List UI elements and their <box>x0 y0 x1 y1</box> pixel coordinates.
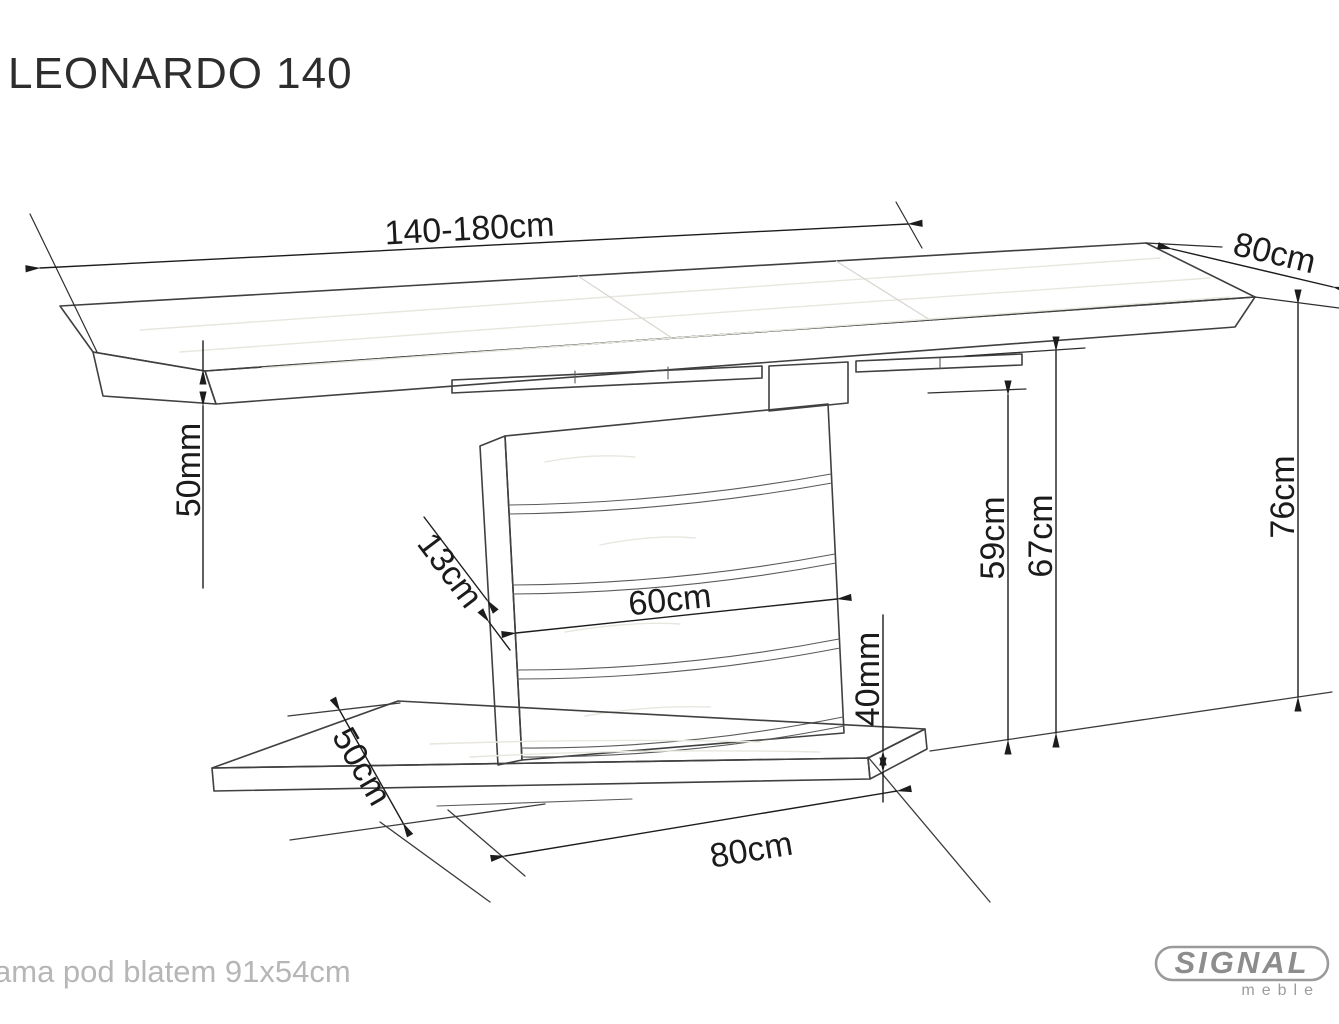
dim-table-depth-ext-back <box>1146 243 1222 247</box>
dim-label-base-thickness: 40mm <box>849 632 887 726</box>
dim-base-length-line <box>505 791 897 856</box>
dim-label-table-height: 76cm <box>1264 455 1302 538</box>
dim-table-depth-ext-front <box>1255 297 1339 308</box>
dim-base-depth: 50cm <box>324 711 403 823</box>
dim-label-base-length: 80cm <box>707 825 795 876</box>
dim-label-underside-height: 67cm <box>1022 494 1060 577</box>
tabletop-wood-texture <box>140 258 1230 368</box>
floor-diagonal-left-b <box>448 810 525 876</box>
leonardo-140-dimension-diagram: LEONARDO 140 <box>0 0 1339 1024</box>
dim-underframe-height: 59cm <box>928 389 1026 740</box>
floor-line-right <box>930 692 1332 751</box>
logo-subtitle-text: meble <box>1241 982 1320 999</box>
page-title: LEONARDO 140 <box>8 49 353 98</box>
dim-table-length-ext-left <box>30 214 97 352</box>
dim-label-slat-width: 13cm <box>410 526 490 615</box>
dim-table-depth: 80cm <box>1146 225 1339 308</box>
dim-table-height: 76cm <box>1264 304 1302 697</box>
apron-right-rail <box>856 354 1022 372</box>
tabletop-left-bevel <box>93 352 216 404</box>
apron-left-rail <box>452 366 762 393</box>
dim-column-width: 60cm <box>516 577 837 633</box>
dim-slat-width-lower <box>489 622 510 650</box>
dim-slat-width: 13cm <box>410 517 510 650</box>
pedestal-side-face <box>480 436 522 765</box>
dim-top-thickness: 50mm <box>170 341 208 588</box>
apron-left-rail-joints <box>575 367 668 383</box>
dim-label-column-width: 60cm <box>627 577 714 623</box>
base-right-face <box>868 729 927 779</box>
dim-label-underframe-height: 59cm <box>974 496 1012 579</box>
tabletop-front-face <box>205 297 1255 404</box>
tabletop-top-face <box>60 243 1255 371</box>
dim-underside-height-ext <box>965 348 1085 356</box>
base-front-face <box>212 758 870 791</box>
pedestal-neck <box>769 362 848 411</box>
floor-line-back-left <box>288 703 400 716</box>
dim-underframe-height-ext <box>928 389 1026 393</box>
diagram-canvas: LEONARDO 140 <box>0 0 1339 1024</box>
dim-label-table-length: 140-180cm <box>383 206 555 253</box>
floor-diagonal-left-a <box>380 822 490 902</box>
logo-brand-text: SIGNAL <box>1174 945 1309 980</box>
dim-base-length: 80cm <box>505 791 897 876</box>
frame-note: ama pod blatem 91x54cm <box>0 954 351 989</box>
floor-diagonal-right <box>868 757 990 902</box>
signal-meble-logo: SIGNAL meble <box>1156 945 1328 999</box>
table-drawing <box>60 243 1255 806</box>
floor-line-front-left <box>290 804 545 840</box>
dim-label-top-thickness: 50mm <box>170 423 208 517</box>
